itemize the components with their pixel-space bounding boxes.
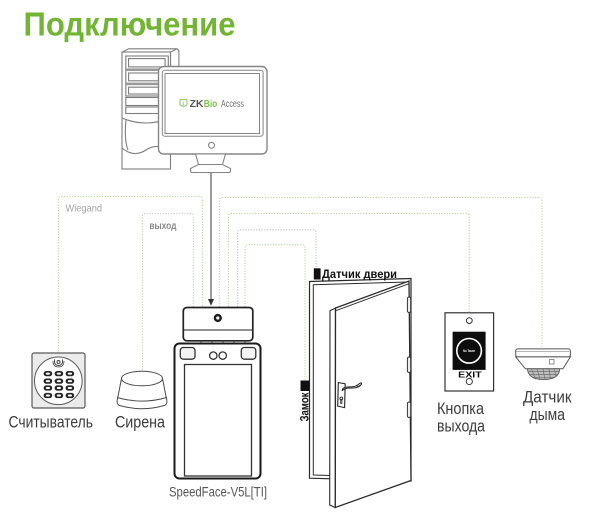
svg-text:ZK: ZK bbox=[190, 99, 205, 110]
svg-text:No Touch: No Touch bbox=[463, 349, 475, 353]
svg-text:Сирена: Сирена bbox=[115, 413, 165, 432]
svg-text:выхода: выхода bbox=[437, 417, 485, 436]
svg-text:дыма: дыма bbox=[530, 405, 566, 424]
svg-text:Подключение: Подключение bbox=[24, 5, 236, 42]
svg-text:Замок: Замок bbox=[300, 392, 312, 421]
svg-text:SpeedFace-V5L[TI]: SpeedFace-V5L[TI] bbox=[169, 484, 267, 500]
svg-text:EXIT: EXIT bbox=[458, 370, 482, 379]
svg-text:Bio: Bio bbox=[204, 99, 218, 110]
svg-text:Access: Access bbox=[221, 99, 244, 110]
svg-text:Датчик двери: Датчик двери bbox=[322, 267, 397, 281]
svg-text:Кнопка: Кнопка bbox=[437, 399, 484, 418]
svg-text:Датчик: Датчик bbox=[523, 388, 572, 407]
svg-text:Считыватель: Считыватель bbox=[9, 413, 94, 432]
svg-text:выход: выход bbox=[149, 220, 176, 232]
svg-text:Wiegand: Wiegand bbox=[66, 204, 103, 215]
